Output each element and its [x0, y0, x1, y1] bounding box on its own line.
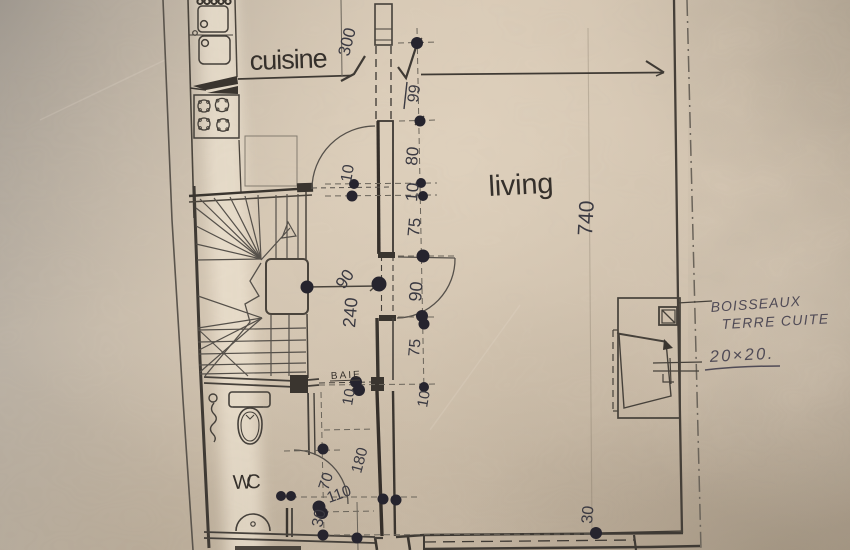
svg-text:30: 30 [579, 505, 597, 524]
svg-text:90: 90 [405, 281, 427, 303]
svg-text:99: 99 [405, 84, 424, 104]
svg-text:75: 75 [404, 217, 425, 238]
svg-text:10: 10 [402, 182, 423, 203]
svg-text:cuisine: cuisine [249, 43, 328, 76]
svg-text:30: 30 [309, 508, 329, 529]
svg-text:240: 240 [339, 297, 362, 329]
svg-text:740: 740 [574, 200, 599, 236]
svg-text:20×20.: 20×20. [708, 345, 774, 366]
svg-text:living: living [488, 168, 555, 203]
svg-text:75: 75 [406, 338, 424, 357]
svg-text:10: 10 [339, 387, 359, 406]
svg-text:10: 10 [414, 389, 434, 408]
svg-text:10: 10 [338, 163, 358, 184]
svg-text:WC: WC [232, 471, 261, 494]
svg-text:80: 80 [402, 146, 423, 167]
